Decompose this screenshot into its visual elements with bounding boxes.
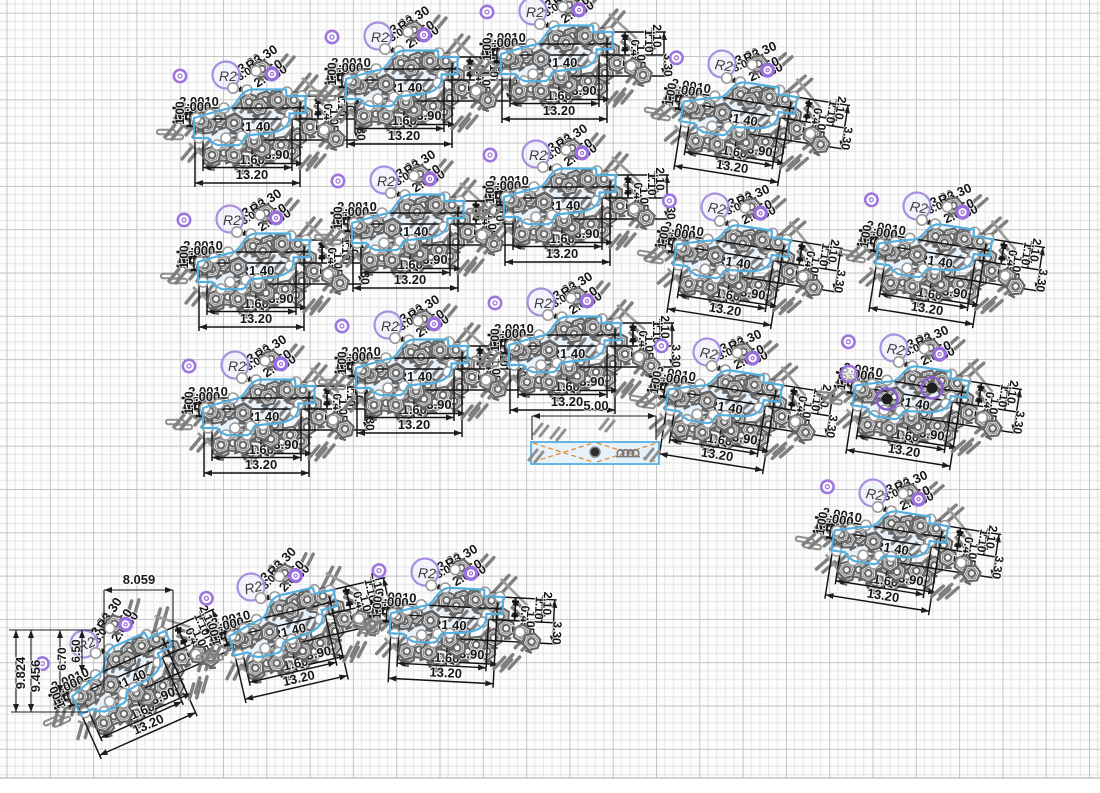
svg-text:5.00: 5.00	[583, 398, 608, 413]
svg-text:6.70: 6.70	[55, 647, 69, 671]
svg-text:8.059: 8.059	[123, 572, 156, 587]
svg-text:9.456: 9.456	[28, 660, 43, 693]
svg-text:9.824: 9.824	[13, 656, 28, 689]
svg-text:6.50: 6.50	[69, 639, 83, 663]
